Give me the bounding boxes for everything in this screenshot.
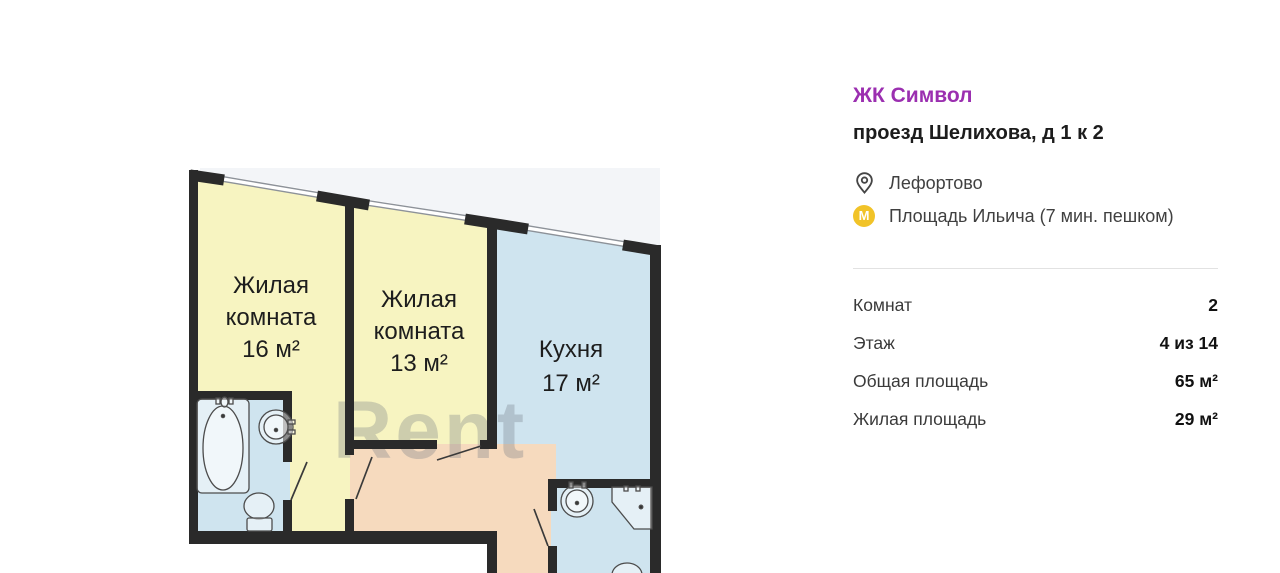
geo-block: Лефортово М Площадь Ильича (7 мин. пешко… xyxy=(853,170,1218,229)
room2-label-line2: комната xyxy=(374,318,465,345)
param-value: 65 м² xyxy=(1175,371,1218,392)
metro-icon-letter: М xyxy=(853,205,875,227)
complex-name: ЖК Символ xyxy=(853,84,1218,108)
param-row-living-area: Жилая площадь 29 м² xyxy=(853,400,1218,438)
metro-icon: М xyxy=(853,204,875,228)
param-row-floor: Этаж 4 из 14 xyxy=(853,324,1218,362)
map-pin-icon xyxy=(853,171,875,195)
param-row-rooms: Комнат 2 xyxy=(853,286,1218,324)
param-row-total-area: Общая площадь 65 м² xyxy=(853,362,1218,400)
param-label: Комнат xyxy=(853,295,912,316)
param-label: Общая площадь xyxy=(853,371,988,392)
param-value: 4 из 14 xyxy=(1160,333,1218,354)
room2-label-area: 13 м² xyxy=(390,350,448,377)
room1-label-area: 16 м² xyxy=(242,336,300,363)
param-value: 29 м² xyxy=(1175,409,1218,430)
room1-label-line2: комната xyxy=(226,304,317,331)
toilet xyxy=(244,493,274,519)
district-name: Лефортово xyxy=(889,173,983,194)
metro-row: М Площадь Ильича (7 мин. пешком) xyxy=(853,203,1218,229)
address: проезд Шелихова, д 1 к 2 xyxy=(853,120,1218,146)
district-row: Лефортово xyxy=(853,170,1218,196)
params-table: Комнат 2 Этаж 4 из 14 Общая площадь 65 м… xyxy=(853,286,1218,438)
metro-station: Площадь Ильича (7 мин. пешком) xyxy=(889,206,1174,227)
param-label: Этаж xyxy=(853,333,895,354)
room1-label-line1: Жилая xyxy=(233,272,309,299)
room2-label-line1: Жилая xyxy=(381,286,457,313)
listing-page: Rent xyxy=(0,0,1280,573)
watermark-text: Rent xyxy=(333,385,527,476)
kitchen-label-line1: Кухня xyxy=(539,336,603,363)
listing-info-panel: ЖК Символ проезд Шелихова, д 1 к 2 Лефор… xyxy=(853,84,1218,438)
kitchen-label-area: 17 м² xyxy=(542,370,600,397)
param-value: 2 xyxy=(1208,295,1218,316)
param-label: Жилая площадь xyxy=(853,409,986,430)
divider xyxy=(853,268,1218,269)
